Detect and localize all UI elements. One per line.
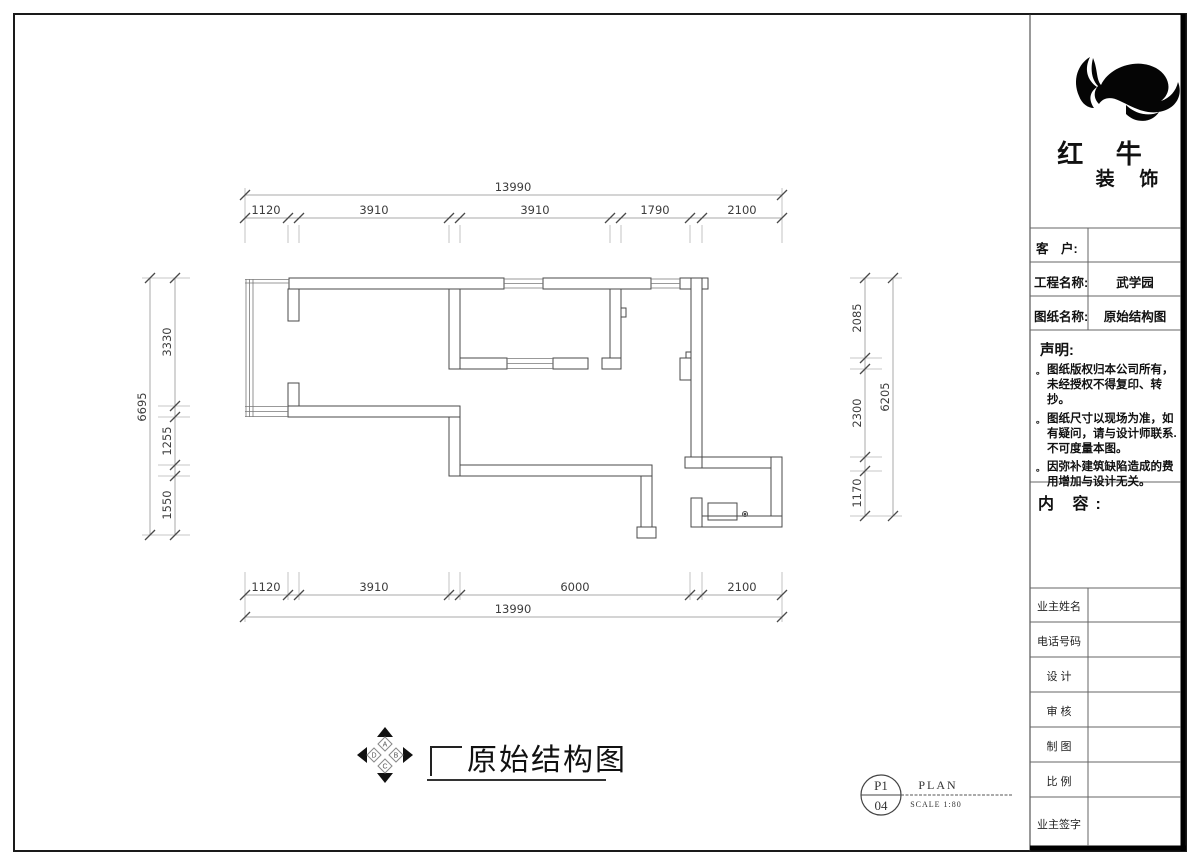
wall-top-left bbox=[289, 278, 504, 289]
balcony-glass-left bbox=[246, 279, 253, 417]
field-value-sheet-name: 原始结构图 bbox=[1090, 306, 1180, 325]
dim-right-seg-1: 2085 bbox=[850, 303, 864, 332]
wall-stub-lower-left bbox=[288, 383, 299, 406]
caption-block: 原始结构图 bbox=[427, 744, 627, 780]
statement-item: 。图纸版权归本公司所有，未经授权不得复印、转抄。 bbox=[1036, 363, 1184, 409]
wall-descending bbox=[641, 476, 652, 527]
floorplan-walls bbox=[288, 278, 782, 538]
statement-item-text: 图纸尺寸以现场为准，如有疑问，请与设计师联系. 不可度量本图。 bbox=[1047, 412, 1184, 458]
sheet-ref: P1 04 PLAN SCALE 1:80 bbox=[861, 775, 1013, 815]
sig-row-owner-sign: 业主签字 bbox=[1030, 816, 1088, 832]
bullet-icon: 。 bbox=[1036, 363, 1047, 409]
compass-arrow-west bbox=[357, 747, 367, 763]
wall-partition-2-foot bbox=[602, 358, 621, 369]
dim-top-overall: 13990 bbox=[495, 180, 532, 194]
dim-top-seg-2: 3910 bbox=[359, 203, 388, 217]
compass-arrow-north bbox=[377, 727, 393, 737]
sig-row-owner-name: 业主姓名 bbox=[1030, 598, 1088, 614]
compass-arrows bbox=[357, 727, 413, 783]
sheet-code-top: P1 bbox=[874, 778, 888, 793]
dimension-ticks bbox=[142, 188, 902, 622]
compass-letters: A B C D bbox=[371, 742, 398, 771]
sheet-type-label: PLAN bbox=[918, 778, 957, 792]
sheet-scale-label: SCALE 1:80 bbox=[910, 800, 962, 809]
statement-item-text: 因弥补建筑缺陷造成的费用增加与设计无关。 bbox=[1047, 460, 1184, 490]
wall-washroom-left-stub bbox=[691, 498, 702, 527]
dimension-lines bbox=[150, 195, 893, 617]
content-heading: 内 容: bbox=[1038, 490, 1108, 514]
dimension-tick-marks bbox=[145, 190, 898, 622]
dim-top-seg-1: 1120 bbox=[251, 203, 280, 217]
field-label-customer: 客 户: bbox=[1036, 238, 1088, 257]
caption-bracket bbox=[431, 747, 462, 776]
dim-left-seg-3: 1550 bbox=[160, 490, 174, 519]
dim-bottom-seg-3: 6000 bbox=[560, 580, 589, 594]
wall-partition-1 bbox=[449, 289, 460, 369]
company-name-line2: 装 饰 bbox=[1082, 164, 1182, 191]
compass-arrow-east bbox=[403, 747, 413, 763]
wall-right bbox=[691, 278, 702, 457]
window-b bbox=[651, 279, 680, 288]
drawing-sheet: 13990 1120 3910 3910 1790 2100 1120 3910… bbox=[0, 0, 1200, 865]
column-right-wall bbox=[680, 358, 691, 380]
dim-top-seg-4: 1790 bbox=[640, 203, 669, 217]
caption-title: 原始结构图 bbox=[467, 744, 627, 777]
bull-swoosh-logo-icon bbox=[1076, 57, 1180, 121]
field-label-project: 工程名称: bbox=[1034, 272, 1090, 291]
dim-bottom-seg-2: 3910 bbox=[359, 580, 388, 594]
switch-box-fixture bbox=[621, 308, 626, 317]
wall-step-horizontal bbox=[460, 465, 652, 476]
dimension-extension-lines bbox=[142, 188, 902, 622]
dim-top-seg-3: 3910 bbox=[520, 203, 549, 217]
dim-left-seg-2: 1255 bbox=[160, 426, 174, 455]
wall-top-middle bbox=[543, 278, 651, 289]
field-label-sheet-name: 图纸名称: bbox=[1034, 306, 1090, 325]
sig-row-review: 审 核 bbox=[1030, 703, 1088, 719]
compass-arrow-south bbox=[377, 773, 393, 783]
dimension-texts: 13990 1120 3910 3910 1790 2100 1120 3910… bbox=[135, 180, 892, 616]
statement-list: 。图纸版权归本公司所有，未经授权不得复印、转抄。 。图纸尺寸以现场为准，如有疑问… bbox=[1036, 363, 1184, 493]
dim-left-seg-1: 3330 bbox=[160, 327, 174, 356]
window-a bbox=[504, 279, 543, 288]
sig-row-scale: 比 例 bbox=[1030, 773, 1088, 789]
drain-dot bbox=[744, 513, 746, 515]
wall-lower-left bbox=[288, 406, 460, 417]
window-sill-middle bbox=[507, 359, 553, 369]
sheet-border bbox=[14, 14, 1186, 851]
compass-letter-c: C bbox=[382, 764, 387, 771]
column-notch bbox=[686, 352, 691, 358]
wall-step-vertical bbox=[449, 417, 460, 476]
sig-row-draft: 制 图 bbox=[1030, 738, 1088, 754]
statement-item: 。图纸尺寸以现场为准，如有疑问，请与设计师联系. 不可度量本图。 bbox=[1036, 412, 1184, 458]
bullet-icon: 。 bbox=[1036, 412, 1047, 458]
wall-middle-bottom-b bbox=[553, 358, 588, 369]
wall-stub-upper-left bbox=[288, 289, 299, 321]
dim-top-seg-5: 2100 bbox=[727, 203, 756, 217]
dim-right-seg-2: 2300 bbox=[850, 398, 864, 427]
balcony-glass-bottom bbox=[245, 407, 288, 417]
compass-letter-a: A bbox=[383, 742, 388, 749]
dim-bottom-seg-4: 2100 bbox=[727, 580, 756, 594]
wall-descending-foot bbox=[637, 527, 656, 538]
compass-letter-b: B bbox=[394, 753, 399, 760]
dim-bottom-overall: 13990 bbox=[495, 602, 532, 616]
plan-linework: 13990 1120 3910 3910 1790 2100 1120 3910… bbox=[0, 0, 1200, 865]
dim-bottom-seg-1: 1120 bbox=[251, 580, 280, 594]
wall-washroom-top bbox=[702, 457, 782, 468]
field-value-project: 武学园 bbox=[1090, 272, 1180, 291]
wall-partition-2 bbox=[610, 289, 621, 358]
bullet-icon: 。 bbox=[1036, 460, 1047, 490]
wall-middle-bottom-a bbox=[460, 358, 507, 369]
compass-letter-d: D bbox=[371, 753, 376, 760]
statement-item: 。因弥补建筑缺陷造成的费用增加与设计无关。 bbox=[1036, 460, 1184, 490]
dim-right-overall: 6205 bbox=[878, 382, 892, 411]
sheet-code-bottom: 04 bbox=[875, 798, 889, 813]
sig-row-design: 设 计 bbox=[1030, 668, 1088, 684]
statement-item-text: 图纸版权归本公司所有，未经授权不得复印、转抄。 bbox=[1047, 363, 1184, 409]
dim-left-overall: 6695 bbox=[135, 392, 149, 421]
compass-icon: A B C D bbox=[357, 727, 413, 783]
dim-right-seg-3: 1170 bbox=[850, 478, 864, 507]
statement-heading: 声明: bbox=[1040, 339, 1074, 360]
balcony-glass-top bbox=[245, 280, 289, 284]
sig-row-phone: 电话号码 bbox=[1030, 633, 1088, 649]
